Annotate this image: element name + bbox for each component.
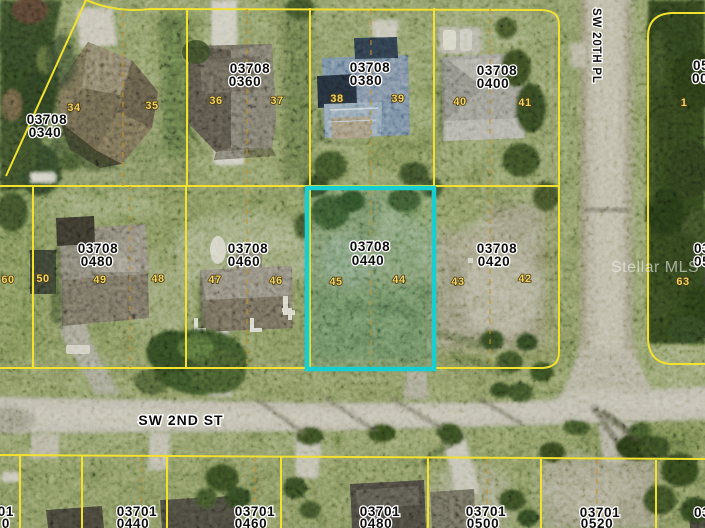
svg-text:47: 47 [208,274,221,286]
svg-text:0460: 0460 [228,254,260,269]
svg-text:35: 35 [145,100,158,112]
svg-text:43: 43 [451,276,464,288]
svg-text:00: 00 [692,71,705,86]
svg-text:0520: 0520 [581,516,613,528]
svg-text:0: 0 [2,516,10,528]
svg-text:SW 2ND ST: SW 2ND ST [138,412,223,428]
svg-text:36: 36 [209,95,222,107]
svg-text:60: 60 [1,274,14,286]
svg-text:50: 50 [36,273,49,285]
svg-text:Stellar MLS: Stellar MLS [611,259,699,276]
svg-text:0440: 0440 [352,253,384,268]
svg-text:45: 45 [329,276,342,288]
svg-text:0480: 0480 [81,254,113,269]
svg-text:0440: 0440 [117,516,149,528]
svg-text:0500: 0500 [467,516,499,528]
svg-text:0400: 0400 [477,76,509,91]
svg-text:37: 37 [270,95,283,107]
svg-text:0380: 0380 [350,73,382,88]
svg-text:0420: 0420 [478,254,510,269]
svg-text:0480: 0480 [360,516,392,528]
svg-text:63: 63 [676,276,689,288]
svg-text:0340: 0340 [29,125,61,140]
svg-text:34: 34 [67,102,81,114]
svg-text:41: 41 [518,97,531,109]
svg-text:49: 49 [93,274,106,286]
svg-text:48: 48 [151,273,164,285]
svg-text:39: 39 [391,93,404,105]
svg-text:40: 40 [453,96,466,108]
svg-text:46: 46 [269,275,282,287]
svg-text:0460: 0460 [235,516,267,528]
svg-text:1: 1 [681,97,688,109]
svg-text:38: 38 [330,93,343,105]
svg-text:SW 20TH PL: SW 20TH PL [590,8,602,84]
svg-text:42: 42 [518,273,531,285]
svg-text:0360: 0360 [229,74,261,89]
svg-text:03708: 03708 [350,239,391,254]
svg-text:44: 44 [392,274,406,286]
svg-text:03: 03 [694,505,705,520]
